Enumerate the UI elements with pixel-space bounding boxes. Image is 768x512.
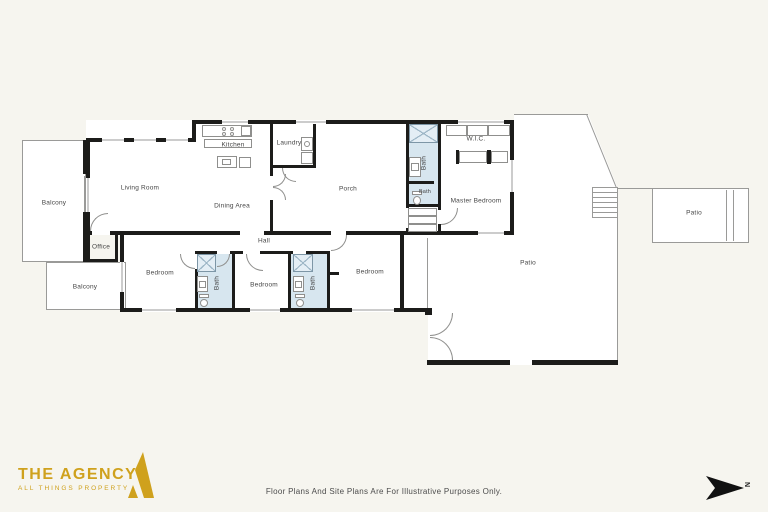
- closet: [467, 125, 488, 136]
- north-arrow-icon: [706, 476, 744, 500]
- wall: [288, 251, 291, 312]
- room-label-bath-hall-right: Bath: [310, 276, 317, 290]
- wall: [270, 122, 273, 168]
- toilet-tank: [199, 294, 209, 298]
- patio-outline: [427, 238, 428, 308]
- window: [134, 138, 156, 142]
- window: [250, 308, 280, 312]
- disclaimer-text: Floor Plans And Site Plans Are For Illus…: [0, 487, 768, 496]
- room-label-living-room: Living Room: [121, 185, 159, 192]
- room-label-balcony-lower: Balcony: [73, 284, 98, 291]
- toilet-tank: [295, 294, 305, 298]
- hall-opening: [240, 231, 264, 235]
- window: [142, 308, 176, 312]
- wall: [86, 235, 90, 262]
- stove-burner: [230, 127, 234, 131]
- room-label-bedroom-middle: Bedroom: [250, 282, 278, 289]
- room-label-patio-upper: Patio: [686, 210, 702, 217]
- kitchen-appliance: [239, 157, 251, 168]
- window: [352, 308, 394, 312]
- window: [458, 120, 504, 124]
- window: [86, 178, 90, 212]
- room-label-bath-master-lower: Bath: [419, 189, 431, 195]
- step: [408, 208, 437, 216]
- stairs: [592, 187, 618, 218]
- room-label-laundry: Laundry: [277, 140, 302, 147]
- window: [120, 262, 124, 292]
- window: [478, 231, 504, 235]
- dryer: [301, 152, 313, 164]
- wall: [86, 231, 514, 235]
- shower: [293, 254, 313, 272]
- wall: [115, 235, 118, 262]
- wall: [270, 200, 273, 231]
- floor-plan: Balcony Living Room Kitchen Laundry Dini…: [0, 0, 768, 512]
- closet: [488, 125, 510, 136]
- room-label-patio-main: Patio: [520, 260, 536, 267]
- wall: [400, 235, 404, 312]
- window: [296, 120, 326, 124]
- north-label: N: [743, 482, 750, 487]
- wall: [327, 251, 330, 312]
- room-label-hall: Hall: [258, 238, 270, 245]
- step: [408, 224, 437, 232]
- room-label-office: Office: [92, 244, 110, 251]
- shower: [409, 124, 438, 143]
- toilet-bowl: [413, 196, 421, 205]
- room-label-master-bedroom: Master Bedroom: [451, 198, 502, 205]
- vanity-sink: [411, 163, 419, 171]
- closet: [446, 125, 467, 136]
- wall: [408, 181, 434, 184]
- door-opening: [92, 231, 110, 235]
- room-label-dining-area: Dining Area: [214, 203, 250, 210]
- closet: [491, 151, 508, 163]
- room-label-balcony-upper: Balcony: [42, 200, 67, 207]
- closet: [459, 151, 487, 163]
- kitchen-appliance: [241, 126, 251, 136]
- room-label-bedroom-right: Bedroom: [356, 269, 384, 276]
- patio-upper-inner-line: [733, 190, 734, 241]
- stove-burner: [222, 127, 226, 131]
- wall: [313, 122, 316, 167]
- shower: [197, 254, 216, 272]
- wall: [192, 120, 196, 142]
- wall: [438, 122, 441, 208]
- wall: [406, 204, 441, 207]
- patio-outline: [618, 188, 652, 189]
- vanity-sink: [295, 281, 302, 288]
- patio-gate-opening: [510, 360, 532, 365]
- brand-name: THE AGENCY: [18, 466, 137, 484]
- wall: [86, 259, 118, 262]
- stove-burner: [222, 132, 226, 136]
- room-label-wic: W.I.C.: [467, 136, 486, 143]
- room-label-bath-hall-left: Bath: [214, 276, 221, 290]
- window: [102, 138, 124, 142]
- toilet-bowl: [296, 299, 304, 307]
- room-label-porch: Porch: [339, 186, 357, 193]
- stove-burner: [230, 132, 234, 136]
- patio-outline: [514, 114, 588, 115]
- window: [166, 138, 188, 142]
- vanity-sink: [199, 281, 206, 288]
- wall: [327, 272, 339, 275]
- washer-door: [304, 141, 310, 147]
- wall: [438, 224, 441, 232]
- room-label-kitchen: Kitchen: [221, 142, 244, 149]
- window: [222, 120, 248, 124]
- kitchen-sink: [222, 159, 231, 165]
- window: [510, 160, 514, 192]
- balcony-window-line: [84, 176, 85, 212]
- wall: [83, 212, 86, 262]
- toilet-bowl: [200, 299, 208, 307]
- patio-upper-inner-line: [726, 190, 727, 241]
- step: [408, 216, 437, 224]
- wall: [232, 251, 235, 312]
- room-label-bath-master-upper: Bath: [421, 156, 428, 170]
- room-label-bedroom-left: Bedroom: [146, 270, 174, 277]
- wall: [83, 140, 86, 174]
